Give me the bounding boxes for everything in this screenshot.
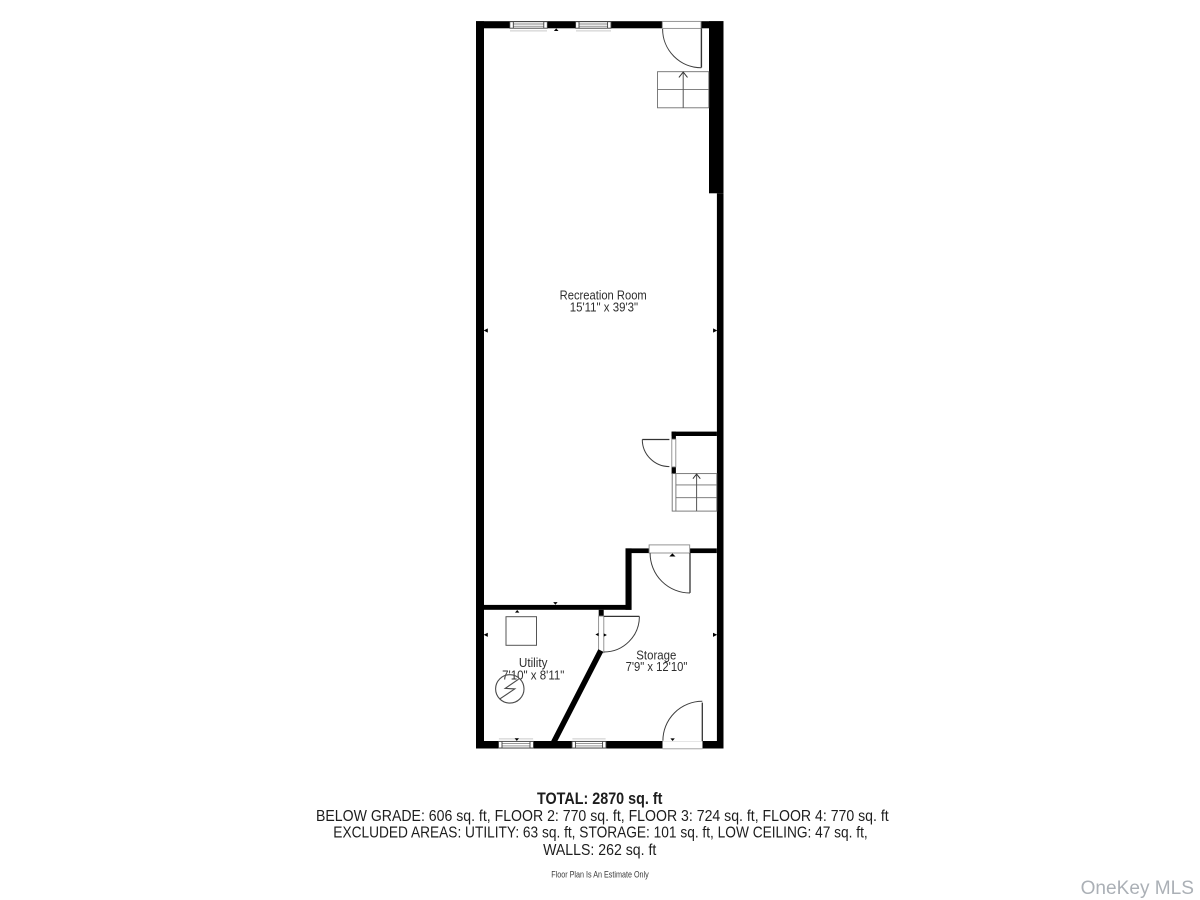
svg-text:BELOW GRADE: 606 sq. ft, FLOOR: BELOW GRADE: 606 sq. ft, FLOOR 2: 770 sq…	[316, 808, 889, 825]
svg-text:OneKey MLS: OneKey MLS	[1081, 878, 1194, 899]
svg-text:WALLS: 262 sq. ft: WALLS: 262 sq. ft	[543, 842, 657, 859]
svg-text:15'11" x 39'3": 15'11" x 39'3"	[570, 301, 638, 315]
svg-text:7'9" x 12'10": 7'9" x 12'10"	[626, 660, 688, 674]
svg-text:Floor Plan Is An Estimate Only: Floor Plan Is An Estimate Only	[551, 870, 649, 880]
svg-text:TOTAL: 2870 sq. ft: TOTAL: 2870 sq. ft	[537, 790, 663, 808]
svg-text:EXCLUDED AREAS: UTILITY: 63 sq: EXCLUDED AREAS: UTILITY: 63 sq. ft, STOR…	[333, 824, 867, 841]
